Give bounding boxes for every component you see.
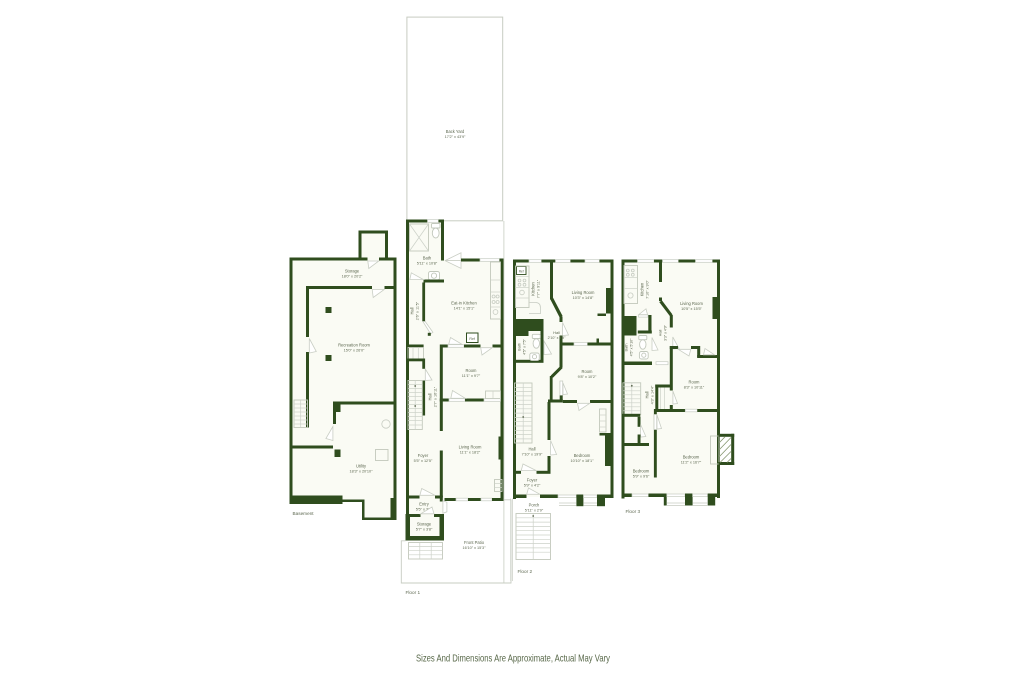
svg-text:11'2" x 16'7": 11'2" x 16'7" bbox=[681, 461, 702, 465]
svg-text:Bath: Bath bbox=[517, 343, 522, 351]
svg-text:Storage: Storage bbox=[417, 522, 432, 527]
svg-text:4'5" x 5'10": 4'5" x 5'10" bbox=[630, 338, 634, 356]
svg-text:Bath: Bath bbox=[423, 256, 432, 261]
svg-text:Kitchen: Kitchen bbox=[531, 281, 536, 295]
svg-text:Room: Room bbox=[466, 368, 478, 373]
svg-text:3'3" x 4'9": 3'3" x 4'9" bbox=[664, 324, 668, 340]
svg-text:18'0" x 20'2": 18'0" x 20'2" bbox=[342, 275, 363, 279]
svg-text:Foyer: Foyer bbox=[418, 453, 429, 458]
svg-text:11'1" x 9'7": 11'1" x 9'7" bbox=[462, 374, 481, 378]
svg-text:Ref: Ref bbox=[519, 269, 524, 273]
svg-text:Bath: Bath bbox=[624, 343, 629, 351]
svg-text:Living Room: Living Room bbox=[680, 301, 703, 306]
svg-text:Living Room: Living Room bbox=[459, 445, 482, 450]
svg-text:5'9" x 4'2": 5'9" x 4'2" bbox=[524, 484, 541, 488]
svg-text:7'10" x 9'0": 7'10" x 9'0" bbox=[646, 279, 650, 298]
svg-text:Room: Room bbox=[689, 380, 701, 385]
svg-text:7'10" x 19'9": 7'10" x 19'9" bbox=[522, 453, 543, 457]
svg-text:10'5" x 15'5": 10'5" x 15'5" bbox=[681, 307, 702, 311]
svg-text:Floor 1: Floor 1 bbox=[406, 590, 421, 595]
svg-text:7'7" x 9'11": 7'7" x 9'11" bbox=[537, 279, 541, 298]
svg-text:Recreation Room: Recreation Room bbox=[338, 343, 370, 348]
svg-text:10'10" x 18'1": 10'10" x 18'1" bbox=[571, 459, 595, 463]
svg-text:5'9" x 9'6": 5'9" x 9'6" bbox=[633, 475, 650, 479]
svg-text:Hall: Hall bbox=[658, 330, 663, 337]
svg-text:Sizes And Dimensions Are Appro: Sizes And Dimensions Are Approximate, Ac… bbox=[416, 653, 611, 665]
svg-text:Hall: Hall bbox=[428, 393, 433, 400]
svg-text:Basement: Basement bbox=[293, 511, 315, 516]
svg-text:16'10" x 15'3": 16'10" x 15'3" bbox=[463, 546, 487, 550]
svg-text:9'8" x 10'2": 9'8" x 10'2" bbox=[578, 375, 597, 379]
svg-text:Ref: Ref bbox=[469, 337, 475, 341]
svg-text:14'1" x 15'1": 14'1" x 15'1" bbox=[454, 307, 475, 311]
svg-text:Room: Room bbox=[582, 369, 594, 374]
svg-text:Back Yard: Back Yard bbox=[446, 129, 465, 134]
svg-text:Floor 2: Floor 2 bbox=[518, 569, 533, 574]
svg-text:Entry: Entry bbox=[419, 502, 430, 507]
svg-text:5'7" x 3'8": 5'7" x 3'8" bbox=[416, 528, 433, 532]
svg-text:Bedroom: Bedroom bbox=[574, 453, 591, 458]
svg-text:5'11" x 10'8": 5'11" x 10'8" bbox=[417, 262, 438, 266]
svg-text:Living Room: Living Room bbox=[572, 290, 595, 295]
svg-text:Front Patio: Front Patio bbox=[464, 540, 485, 545]
svg-text:11'1" x 18'2": 11'1" x 18'2" bbox=[460, 451, 481, 455]
svg-text:2'10" x 7'9": 2'10" x 7'9" bbox=[548, 336, 566, 340]
svg-text:Hall: Hall bbox=[410, 307, 415, 314]
svg-text:Utility: Utility bbox=[356, 464, 367, 469]
svg-text:Foyer: Foyer bbox=[527, 478, 538, 483]
svg-text:Eat-in Kitchen: Eat-in Kitchen bbox=[451, 301, 477, 306]
svg-text:15'0" x 26'0": 15'0" x 26'0" bbox=[344, 349, 365, 353]
svg-text:2'7" x 16'11": 2'7" x 16'11" bbox=[434, 386, 438, 407]
svg-text:Kitchen: Kitchen bbox=[640, 282, 645, 296]
svg-text:Hall: Hall bbox=[553, 330, 560, 335]
svg-text:10'3" x 14'8": 10'3" x 14'8" bbox=[573, 296, 594, 300]
svg-text:Hall: Hall bbox=[645, 391, 650, 398]
svg-text:8'3" x 10'11": 8'3" x 10'11" bbox=[684, 386, 705, 390]
svg-text:Floor 3: Floor 3 bbox=[626, 509, 641, 514]
svg-text:4'5" x 7'5": 4'5" x 7'5" bbox=[523, 338, 527, 354]
svg-text:2'6" x 11'5": 2'6" x 11'5" bbox=[416, 301, 420, 320]
svg-text:Storage: Storage bbox=[345, 269, 360, 274]
svg-text:4'3" x 14'4": 4'3" x 14'4" bbox=[651, 385, 655, 404]
svg-text:17'2" x 43'9": 17'2" x 43'9" bbox=[445, 135, 466, 139]
svg-text:Bedroom: Bedroom bbox=[683, 455, 700, 460]
svg-text:5'11" x 2'9": 5'11" x 2'9" bbox=[525, 509, 544, 513]
svg-text:Hall: Hall bbox=[528, 447, 535, 452]
svg-text:18'3" x 20'10": 18'3" x 20'10" bbox=[350, 470, 374, 474]
svg-text:Porch: Porch bbox=[529, 503, 540, 508]
svg-text:Bedroom: Bedroom bbox=[633, 469, 650, 474]
svg-text:5'5" x 12'5": 5'5" x 12'5" bbox=[414, 459, 433, 463]
